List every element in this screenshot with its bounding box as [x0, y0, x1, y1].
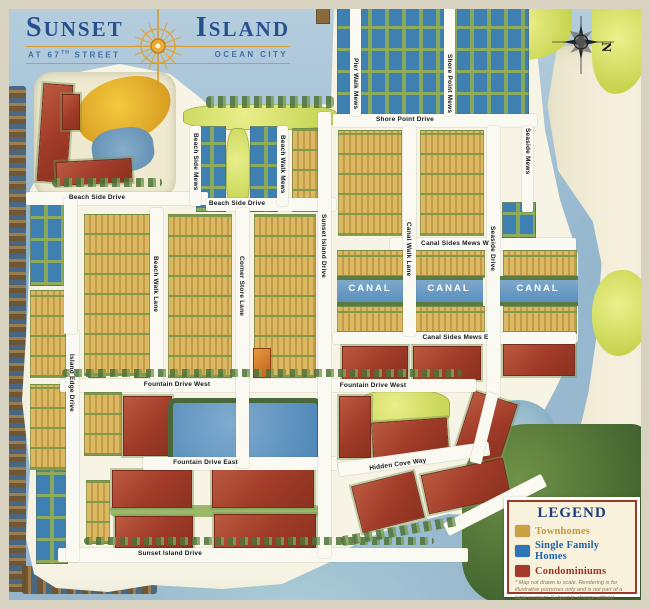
- map-title-block: Sunset Island AT 67TH STREET OCEAN CITY: [26, 12, 290, 66]
- title-word-island: Island: [196, 12, 290, 44]
- street-label-beach-walk-lane: Beach Walk Lane: [151, 256, 159, 312]
- legend-item-townhomes: Townhomes: [515, 525, 629, 537]
- road-corner-store-lane: [236, 208, 249, 468]
- tree-row: [62, 369, 462, 377]
- block-townhomes: [503, 306, 577, 334]
- block-condo: [503, 344, 575, 376]
- block-townhomes: [86, 480, 110, 544]
- road-sunset-island-drive-vertical: [318, 112, 331, 558]
- block-townhomes: [30, 290, 66, 378]
- street-label-pier-walk-mews: Pier Walk Mews: [351, 58, 359, 109]
- street-label-island-edge-drive: Island Edge Drive: [67, 354, 75, 412]
- street-label-beach-side-drive-e: Beach Side Drive: [178, 200, 296, 208]
- title-word-sunset: Sunset: [26, 12, 124, 44]
- street-label-fountain-drive-east: Fountain Drive East: [148, 459, 263, 467]
- tree-row: [206, 96, 334, 108]
- street-label-shore-point-mews: Shore Point Mews: [445, 54, 453, 113]
- block-single-family: [337, 6, 529, 118]
- street-label-beach-side-drive-w: Beach Side Drive: [38, 194, 156, 202]
- legend-item-single-family: Single Family Homes: [515, 540, 629, 562]
- street-label-sunset-island-drive-n: Sunset Island Drive: [319, 214, 327, 278]
- canal-label: CANAL: [416, 284, 482, 294]
- street-label-corner-store-lane: Corner Store Lane: [237, 256, 245, 316]
- block-townhomes: [503, 250, 577, 278]
- legend-item-condominiums: Condominiums: [515, 565, 629, 577]
- block-townhomes: [30, 384, 66, 470]
- canal-label: CANAL: [340, 284, 400, 294]
- legend-disclaimer: * Map not drawn to scale. Rendering is f…: [515, 580, 629, 609]
- block-condo: [212, 466, 314, 508]
- legend-title: LEGEND: [515, 505, 629, 522]
- block-townhomes: [420, 130, 484, 236]
- marina-dock-west: [8, 86, 26, 592]
- block-townhomes: [84, 214, 150, 376]
- street-label-canal-walk-lane: Canal Walk Lane: [404, 222, 412, 276]
- subtitle-city: OCEAN CITY: [215, 50, 288, 60]
- road-west-column: [64, 198, 77, 334]
- street-label-shore-point-drive: Shore Point Drive: [340, 116, 470, 124]
- street-label-fountain-drive-west-1: Fountain Drive West: [118, 381, 236, 389]
- header-compass-medallion-icon: [127, 4, 189, 88]
- beach-club-building: [62, 94, 80, 130]
- street-label-seaside-mews: Seaside Mews: [523, 128, 531, 174]
- tree-row: [52, 178, 162, 187]
- block-condo: [339, 396, 371, 458]
- compass-rose-icon: N: [552, 16, 624, 74]
- legend-swatch-condominiums: [515, 565, 530, 577]
- street-label-canal-sides-mews-e: Canal Sides Mews E: [408, 334, 503, 342]
- legend-swatch-single-family: [515, 545, 530, 557]
- street-label-beach-side-mews: Beach Side Mews: [191, 133, 199, 191]
- subtitle-street: AT 67TH STREET: [28, 50, 120, 60]
- fishing-pier-north: [316, 0, 330, 24]
- legend-label-condominiums: Condominiums: [535, 566, 606, 577]
- street-label-fountain-drive-west-2: Fountain Drive West: [336, 382, 410, 390]
- street-label-seaside-drive: Seaside Drive: [488, 226, 496, 271]
- street-label-sunset-island-drive-s: Sunset Island Drive: [115, 550, 225, 558]
- block-townhomes: [84, 392, 122, 456]
- legend-label-townhomes: Townhomes: [535, 526, 590, 537]
- block-single-family: [30, 202, 66, 286]
- legend-label-single-family: Single Family Homes: [535, 540, 629, 562]
- block-townhomes: [168, 214, 232, 378]
- street-label-beach-walk-mews: Beach Walk Mews: [278, 135, 286, 194]
- block-condo: [112, 470, 192, 508]
- legend-swatch-townhomes: [515, 525, 530, 537]
- site-map: Shore Point Drive Pier Walk Mews Shore P…: [0, 0, 650, 609]
- legend: LEGEND Townhomes Single Family Homes Con…: [504, 497, 640, 597]
- block-townhomes: [338, 130, 402, 236]
- svg-text:N: N: [598, 42, 613, 52]
- block-condo: [123, 396, 172, 456]
- canal-label: CANAL: [500, 284, 576, 294]
